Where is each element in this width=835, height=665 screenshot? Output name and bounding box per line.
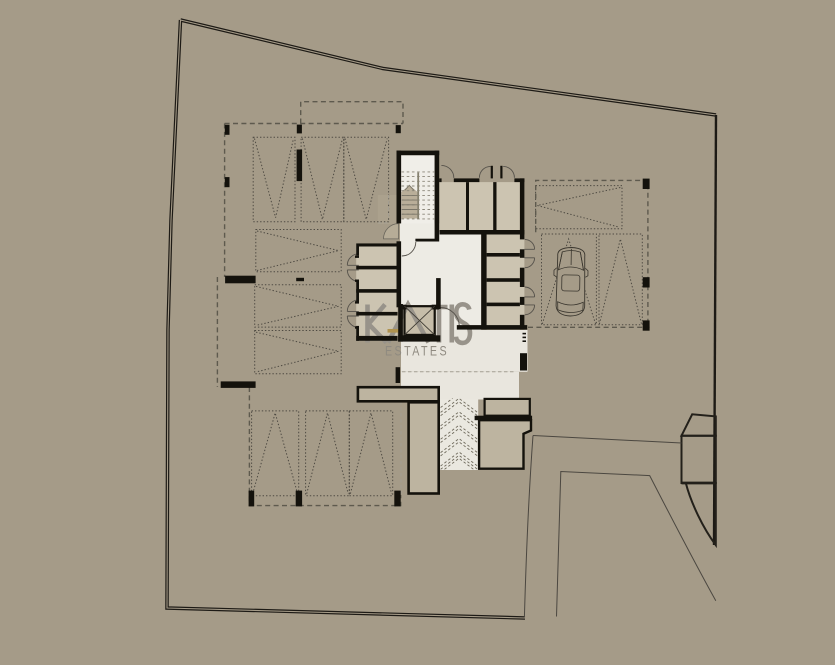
svg-text:ESTATES: ESTATES bbox=[385, 344, 449, 359]
